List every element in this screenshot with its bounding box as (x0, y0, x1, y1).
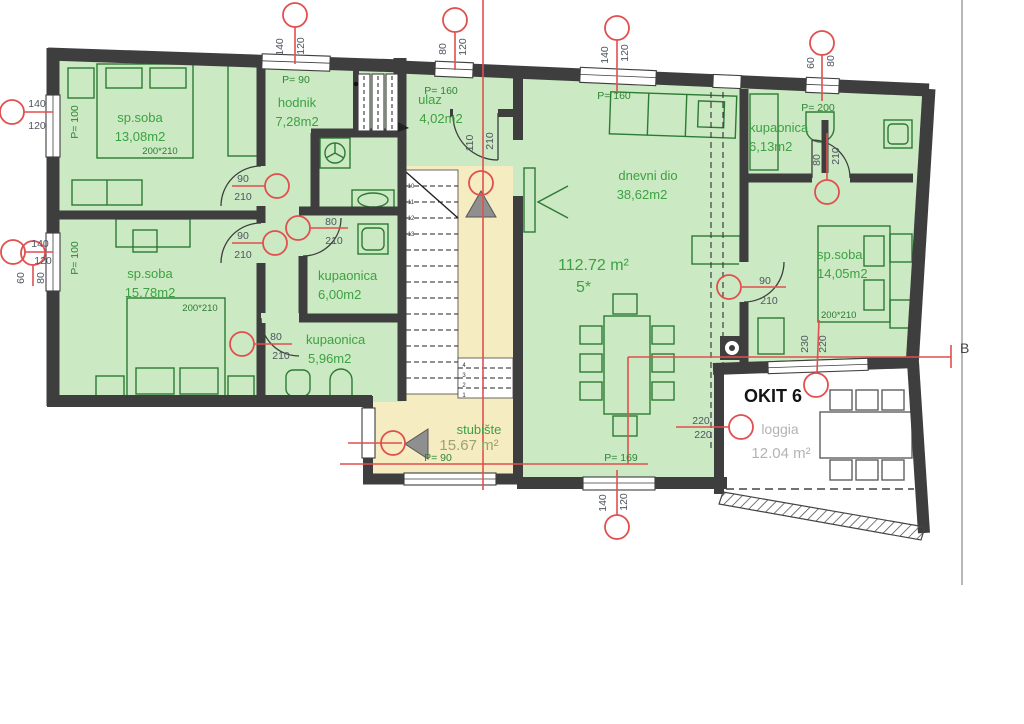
door-width: 80 (325, 216, 337, 228)
window-height: 220 (694, 429, 712, 441)
section-label: B (960, 340, 969, 356)
window-height: 120 (619, 44, 631, 62)
door-width: 80 (811, 154, 823, 166)
room-area: 6,00m2 (318, 287, 361, 302)
window-sill: P= 90 (424, 452, 452, 464)
window-height: 120 (295, 37, 307, 55)
door-width: 90 (237, 230, 249, 242)
room-area: 38,62m2 (617, 187, 668, 202)
floor-plan-drawing: 10 11 12 13 4 3 2 1 (0, 0, 1024, 724)
door-height: 210 (272, 350, 290, 362)
door-height: 210 (234, 191, 252, 203)
door-width: 110 (464, 134, 476, 151)
window-width: 140 (28, 98, 46, 110)
window-height: 120 (618, 493, 630, 511)
room-name: kupaonica (306, 332, 366, 347)
window-width: 220 (692, 415, 710, 427)
floor-plan-page: 10 11 12 13 4 3 2 1 (0, 0, 1024, 724)
room-name: kupaonica (318, 268, 378, 283)
unit-type-label: 5* (576, 279, 591, 296)
bed-size: 200*210 (182, 303, 217, 314)
loggia-walls (719, 489, 925, 540)
window-sill: P= 160 (597, 90, 631, 102)
window-sill: P= 90 (282, 74, 310, 86)
room-area: 7,28m2 (275, 114, 318, 129)
window-width: 140 (597, 494, 609, 512)
room-name: loggia (761, 421, 799, 437)
stair-number: 12 (408, 216, 415, 222)
room-name: dnevni dio (618, 168, 677, 183)
window-sill: P= 160 (424, 85, 458, 97)
room-area: 13,08m2 (115, 129, 166, 144)
window-sill: P= 200 (801, 102, 835, 114)
window-width: 230 (799, 335, 811, 353)
room-area: 5,96m2 (308, 351, 351, 366)
stair-number: 10 (408, 184, 415, 190)
window-height: 120 (457, 38, 469, 56)
window-sill: P= 100 (69, 241, 81, 275)
window-sill: P= 100 (69, 105, 81, 139)
room-name: stubište (457, 422, 502, 437)
room-area: 12.04 m² (751, 445, 810, 462)
window-width: 140 (31, 238, 49, 250)
room-name: kupaonica (749, 120, 809, 135)
door-height: 210 (325, 235, 343, 247)
room-name: hodnik (278, 95, 317, 110)
room-area: 15,78m2 (125, 285, 176, 300)
unit-name-label: OKIT 6 (744, 386, 802, 406)
window-width: 60 (15, 272, 27, 284)
room-name: sp.soba (127, 266, 173, 281)
window-height: 80 (35, 272, 47, 284)
room-area: 14,05m2 (817, 266, 868, 281)
window-width: 140 (599, 46, 611, 64)
room-name: sp.soba (117, 110, 163, 125)
loggia-furniture (820, 390, 912, 480)
door-height: 210 (830, 147, 842, 165)
window-width: 80 (437, 43, 449, 55)
window-height: 120 (28, 120, 46, 132)
stair-number: 13 (408, 232, 415, 238)
door-width: 90 (759, 275, 771, 287)
bed-size: 200*210 (142, 146, 177, 157)
door-width: 90 (237, 173, 249, 185)
stair-number: 11 (408, 200, 415, 206)
room-name: sp.soba (817, 247, 863, 262)
room-area: 4,02m2 (419, 111, 462, 126)
window-height: 80 (825, 55, 837, 67)
window-width: 140 (274, 38, 286, 56)
door-height: 210 (234, 249, 252, 261)
room-area: 6,13m2 (749, 139, 792, 154)
window-height: 220 (817, 335, 829, 353)
window-width: 60 (805, 57, 817, 69)
door-height: 210 (484, 132, 496, 150)
window-sill: P= 169 (604, 452, 638, 464)
door-height: 210 (760, 295, 778, 307)
door-width: 80 (270, 331, 282, 343)
total-area-label: 112.72 m² (558, 257, 630, 274)
bed-size: 200*210 (821, 310, 856, 321)
window-height: 120 (34, 255, 52, 267)
